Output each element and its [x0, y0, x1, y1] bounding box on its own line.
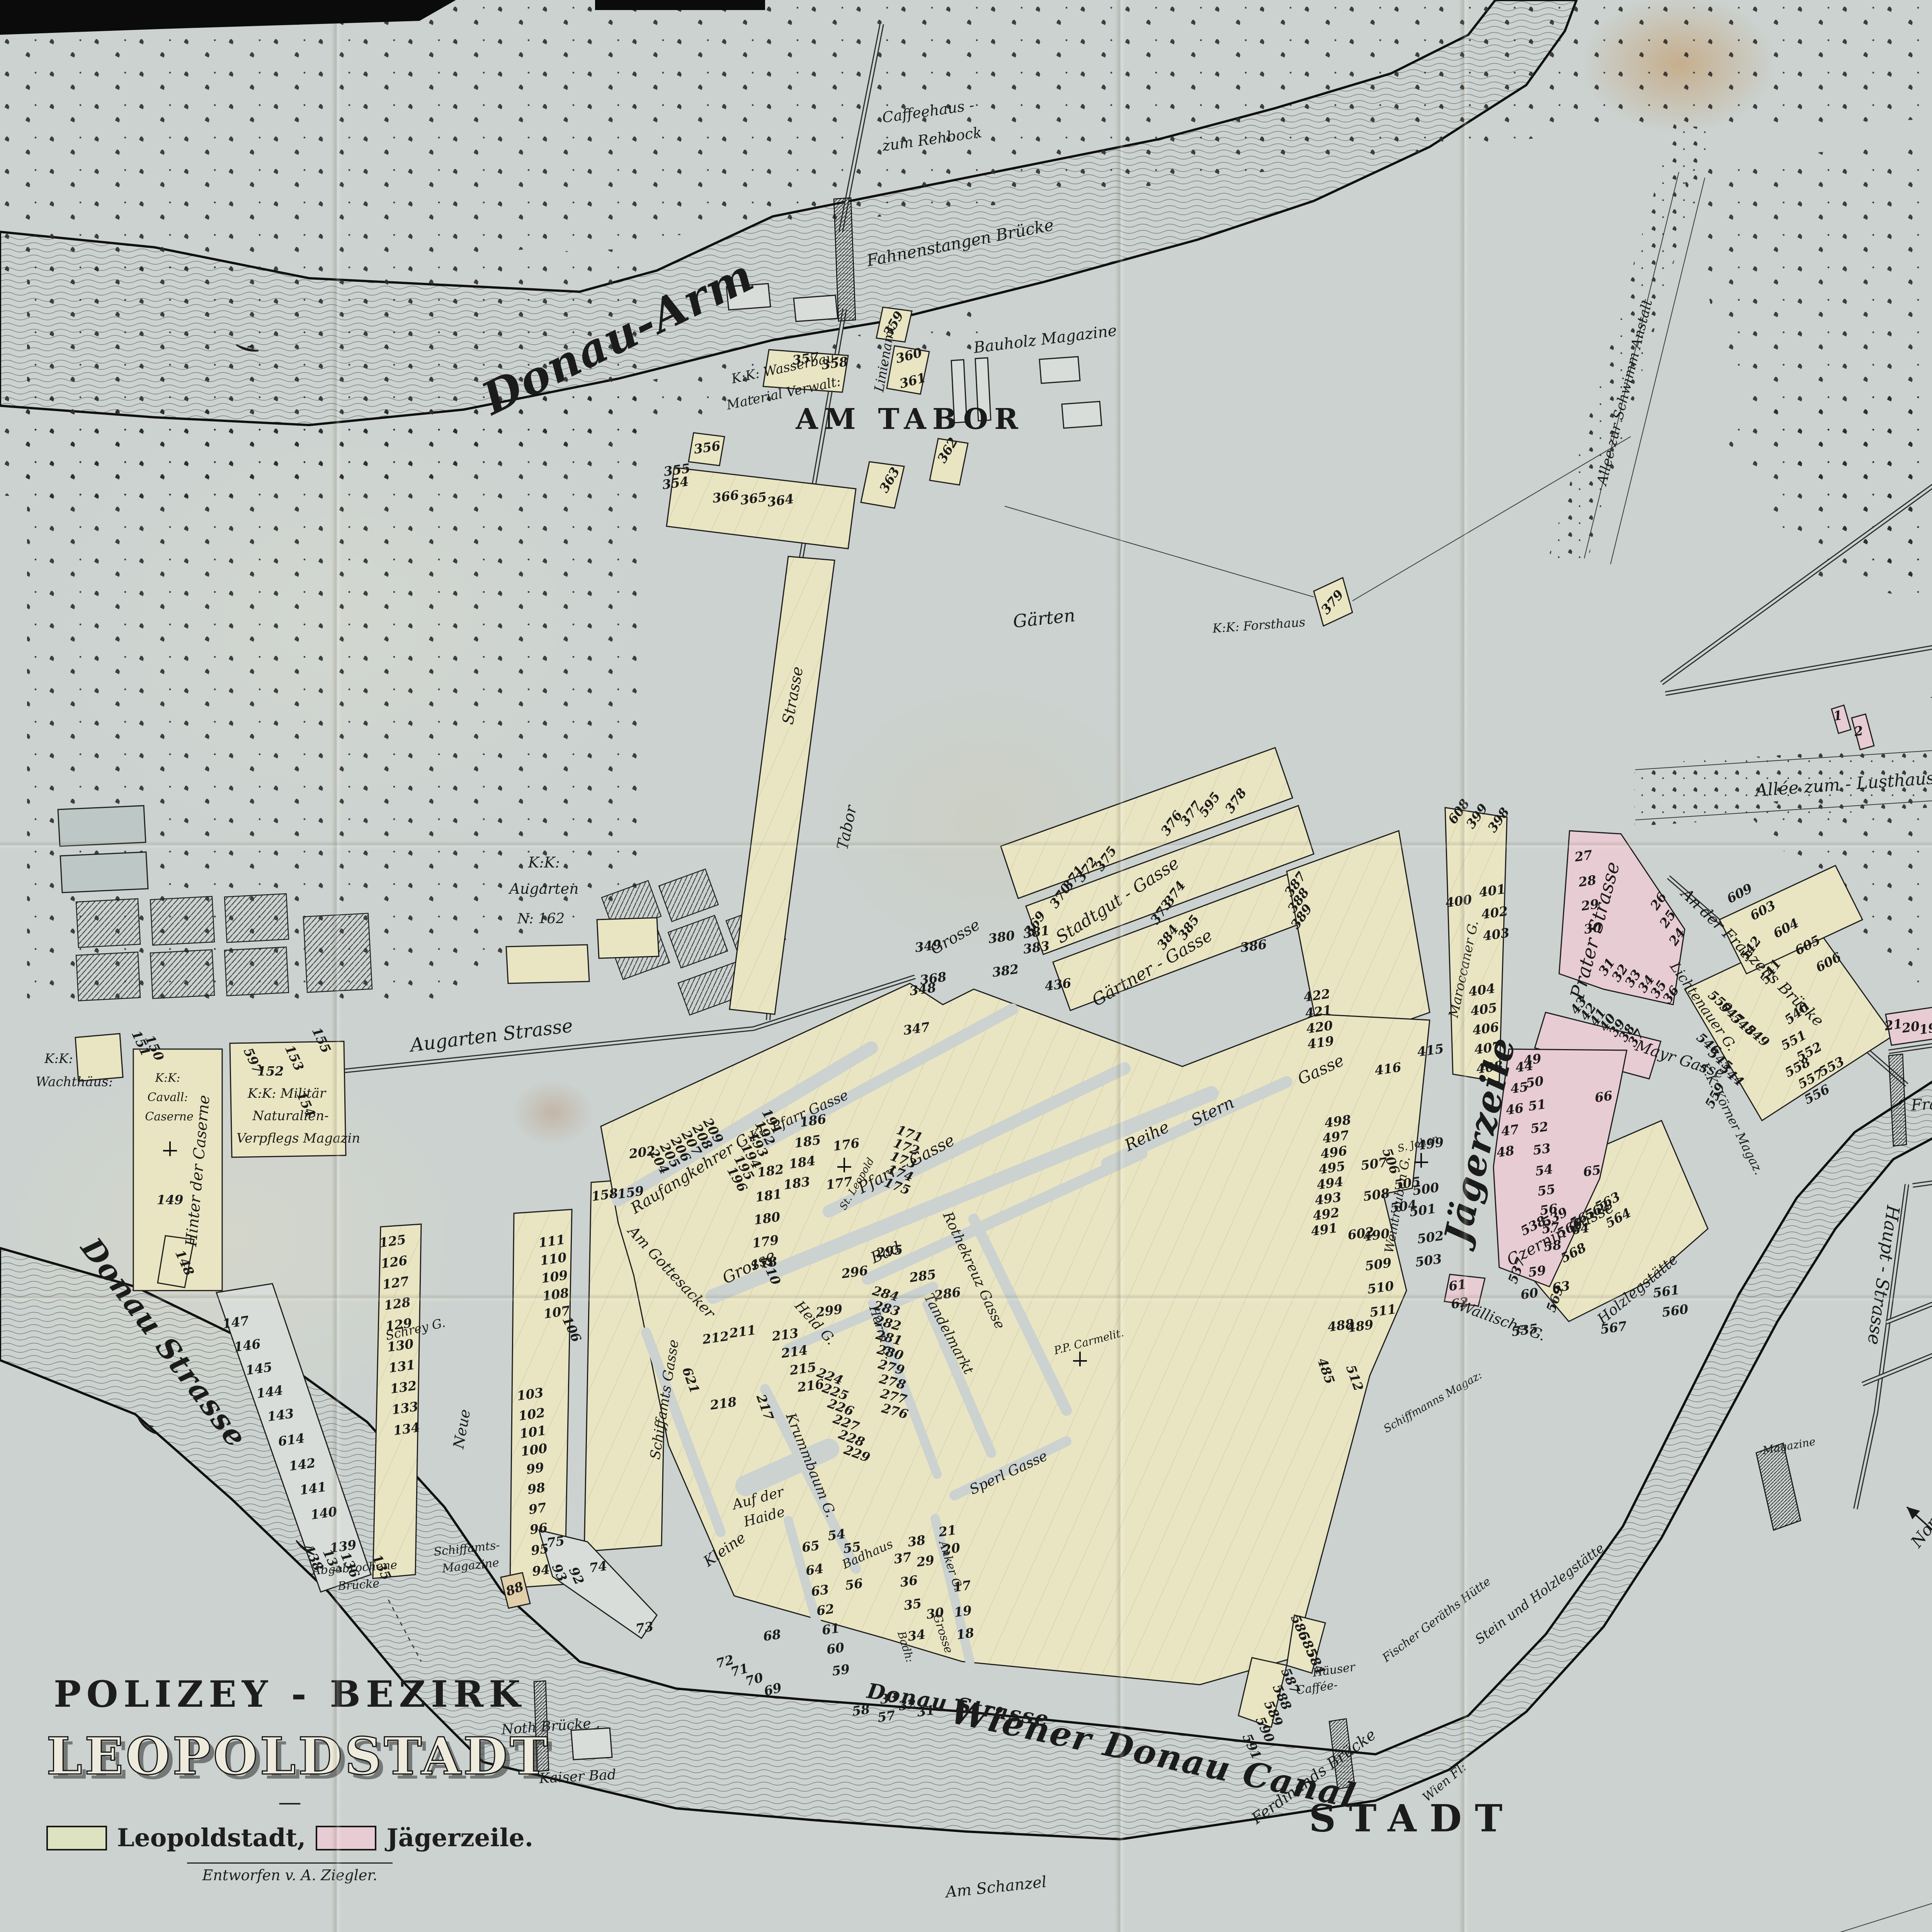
- legend-label-jaegerzeile: Jägerzeile.: [386, 1823, 533, 1852]
- title-divider: —: [46, 1789, 533, 1816]
- map-title-line2: LEOPOLDSTADT: [46, 1726, 533, 1786]
- map-legend: Leopoldstadt, Jägerzeile.: [46, 1823, 533, 1852]
- legend-swatch-jaegerzeile: [316, 1826, 376, 1850]
- map-engraving: [0, 0, 1932, 1932]
- title-block: POLIZEY - BEZIRK LEOPOLDSTADT — Leopolds…: [46, 1673, 533, 1884]
- legend-swatch-leopoldstadt: [46, 1826, 107, 1850]
- map-photo: AM TABORSTADTWEISZGÄRBERDonau-ArmWiener …: [0, 0, 1932, 1932]
- legend-label-leopoldstadt: Leopoldstadt,: [117, 1823, 306, 1852]
- map-credit: Entworfen v. A. Ziegler.: [187, 1862, 393, 1884]
- map-title-line1: POLIZEY - BEZIRK: [46, 1673, 533, 1716]
